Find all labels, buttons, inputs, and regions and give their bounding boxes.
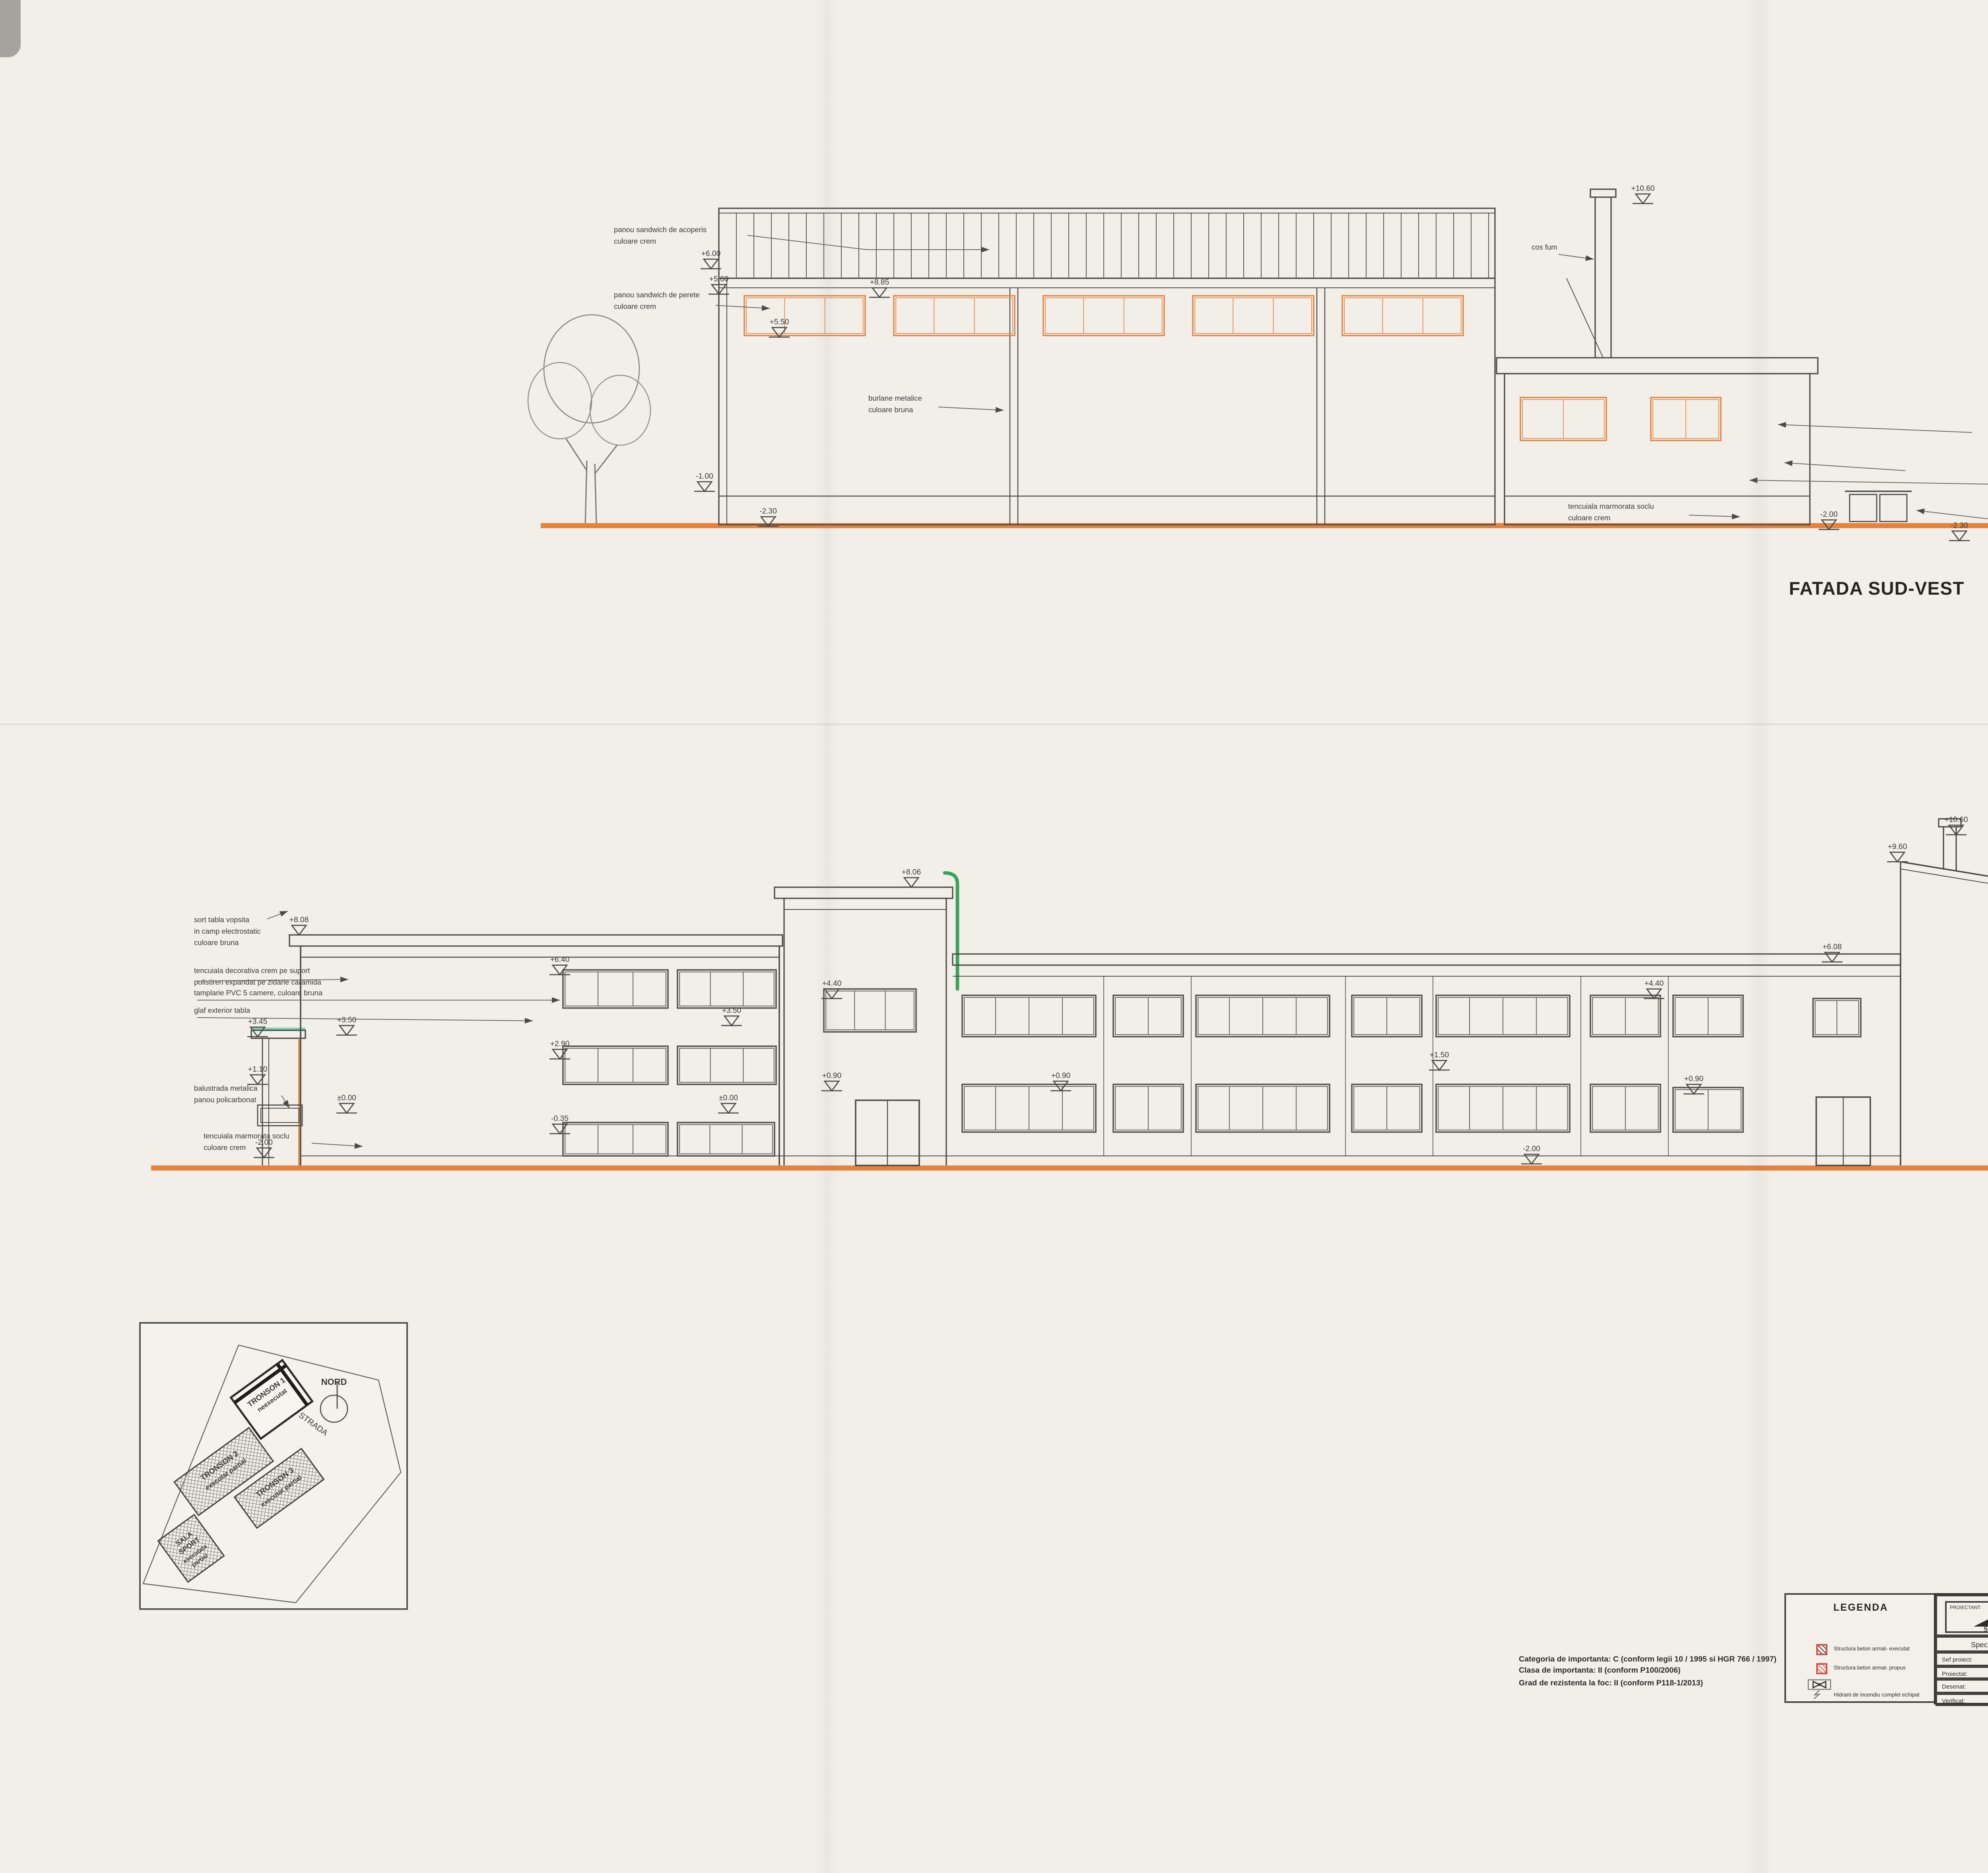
annotation-text: culoare bruna xyxy=(868,405,913,414)
window-inner-frame xyxy=(1195,298,1312,333)
spec-row: Sef proiect: xyxy=(1936,1652,1988,1666)
leader-arrow xyxy=(552,997,560,1003)
window-inner-frame xyxy=(896,298,1013,333)
level-marker-value: +6.08 xyxy=(1823,943,1842,951)
gfx-rect xyxy=(1880,494,1907,522)
gfx-line xyxy=(1567,278,1603,358)
window xyxy=(894,296,1015,335)
annotation-text: in camp electrostatic xyxy=(194,927,261,935)
level-marker-value: +3.45 xyxy=(248,1018,268,1026)
title-block: PROIECTANT: SPIRICOM S.C.SPIRICOM S.R.L.… xyxy=(1934,1593,1988,1704)
spec-label: Verificat: xyxy=(1942,1697,1965,1704)
level-marker-value: +1.10 xyxy=(248,1065,268,1074)
level-marker-value: +3.50 xyxy=(722,1006,742,1015)
level-marker-triangle xyxy=(340,1103,354,1113)
level-marker-value: +6.00 xyxy=(701,250,721,258)
window-inner-frame xyxy=(746,298,863,333)
chimney-cap xyxy=(1590,189,1616,197)
level-marker-triangle xyxy=(1952,531,1967,541)
leader-line xyxy=(716,305,770,308)
level-marker-value: +10.60 xyxy=(1944,816,1968,824)
window xyxy=(744,296,865,335)
leader-arrow xyxy=(996,407,1004,413)
leader-line xyxy=(747,235,989,250)
window-inner-frame xyxy=(1045,298,1162,333)
annotation-text: polistiren expandat pe zidarie caramida xyxy=(194,978,322,986)
gfx-rect xyxy=(1850,494,1877,522)
level-marker-triangle xyxy=(721,1103,736,1113)
annotation-text: glaf exterior tabla xyxy=(194,1006,250,1014)
scan-corner-artifact xyxy=(0,0,21,57)
window xyxy=(1342,296,1463,335)
level-marker-triangle xyxy=(904,878,918,887)
level-marker-value: -2.00 xyxy=(1820,510,1838,519)
hatch-propus-swatch xyxy=(1816,1663,1827,1674)
legend-item-label: Structura beton armat- executat xyxy=(1834,1646,1910,1652)
annotation-text: tencuiala decorativa crem pe suport xyxy=(194,966,310,975)
level-marker-triangle xyxy=(704,259,718,269)
annotation-text: tencuiala marmorata soclu xyxy=(204,1132,289,1140)
scan-fold-line xyxy=(0,723,1988,725)
legend-item-label: Structura beton armat- propus xyxy=(1834,1665,1906,1671)
leader-line xyxy=(197,1018,533,1021)
level-marker-value: +0.90 xyxy=(1684,1075,1704,1083)
annotation-text: burlane metalice xyxy=(868,394,922,402)
level-marker-value: +8.85 xyxy=(870,278,889,287)
window xyxy=(563,1046,668,1084)
annotation-text: culoare bruna xyxy=(194,938,239,947)
window-inner-frame xyxy=(679,972,774,1006)
annotation-text: culoare crem xyxy=(614,237,656,245)
level-marker-value: +2.90 xyxy=(550,1040,570,1048)
spec-header: Specificatie xyxy=(1937,1640,1988,1648)
hydrant-icon xyxy=(1807,1679,1835,1700)
leader-arrow xyxy=(1732,514,1740,519)
annotation-text: culoare crem xyxy=(204,1143,246,1152)
gfx-line xyxy=(1901,869,1988,937)
leader-line xyxy=(1778,425,1972,432)
leader-arrow xyxy=(355,1143,363,1149)
window-inner-frame xyxy=(565,972,666,1006)
level-marker-triangle xyxy=(872,288,887,297)
drawings-layer: +6.00+5.60+8.85+5.50-1.00-2.30+10.60-2.0… xyxy=(0,0,1988,1873)
spec-header-cell: Specificatie xyxy=(1936,1636,1988,1652)
level-marker-triangle xyxy=(1890,852,1905,862)
annotation-text: tamplarie PVC 5 camere, culoare bruna xyxy=(194,989,323,997)
level-marker-value: -2.30 xyxy=(759,507,777,516)
window-inner-frame xyxy=(1344,298,1461,333)
window-inner-frame xyxy=(679,1125,773,1154)
level-marker-triangle xyxy=(340,1026,354,1035)
leader-arrow xyxy=(1585,255,1594,261)
hatch-executat-swatch xyxy=(1816,1644,1827,1655)
annotation-text: tencuiala marmorata soclu xyxy=(1568,502,1654,510)
annotation-text: panou policarbonat xyxy=(194,1095,256,1104)
spec-label: Desenat: xyxy=(1942,1684,1966,1690)
tower-coping xyxy=(775,887,953,898)
window xyxy=(1043,296,1164,335)
level-marker-triangle xyxy=(1687,1084,1701,1094)
legend-title: LEGENDA xyxy=(1786,1603,1936,1614)
level-marker-value: +8.06 xyxy=(902,868,921,876)
legend-box: LEGENDA Structura beton armat- executat … xyxy=(1784,1593,1937,1703)
leader-line xyxy=(1749,480,1988,485)
level-marker-value: +3.50 xyxy=(337,1016,357,1024)
window xyxy=(563,970,668,1008)
gfx-rect xyxy=(261,1108,299,1123)
window xyxy=(678,970,776,1008)
leader-arrow xyxy=(280,911,288,917)
annotation-text: culoare crem xyxy=(614,302,656,310)
level-marker-triangle xyxy=(1432,1061,1446,1070)
leader-arrow xyxy=(525,1018,533,1024)
gfx-ellipse xyxy=(590,375,650,445)
level-marker-value: +9.60 xyxy=(1888,843,1907,851)
level-marker-value: +8.08 xyxy=(289,916,309,924)
ground-line-nv xyxy=(151,1165,1988,1171)
leader-line xyxy=(1784,463,1905,471)
gfx-ellipse xyxy=(528,363,592,439)
proiectant-cell: PROIECTANT: SPIRICOM xyxy=(1936,1595,1988,1636)
window-inner-frame xyxy=(679,1048,774,1082)
level-marker-value: +5.50 xyxy=(770,318,789,326)
window xyxy=(678,1046,776,1084)
window-inner-frame xyxy=(565,1048,666,1082)
level-marker-value: ±0.00 xyxy=(719,1094,738,1102)
level-marker-triangle xyxy=(1054,1081,1068,1091)
spec-label: Proiectat: xyxy=(1942,1670,1967,1677)
spec-row: Desenat: xyxy=(1936,1679,1988,1693)
spec-row: Proiectat: xyxy=(1936,1666,1988,1679)
level-marker-value: -2.00 xyxy=(1523,1145,1540,1153)
leader-arrow xyxy=(1778,422,1786,428)
leader-arrow xyxy=(1916,508,1925,514)
leader-arrow xyxy=(283,1100,289,1108)
annotation-text: balustrada metalica xyxy=(194,1084,258,1092)
level-marker-triangle xyxy=(1636,194,1650,204)
level-marker-value: +6.40 xyxy=(550,956,570,964)
window xyxy=(1193,296,1314,335)
leader-arrow xyxy=(762,305,770,311)
level-marker-value: +0.90 xyxy=(1051,1072,1071,1080)
spiricom-logo: SPIRICOM xyxy=(1969,1609,1988,1633)
window xyxy=(563,1123,668,1156)
level-marker-value: +10.60 xyxy=(1631,184,1654,193)
leader-arrow xyxy=(1784,460,1792,466)
level-marker-value: -1.00 xyxy=(696,472,713,481)
leader-line xyxy=(938,407,1004,410)
logo-text: SPIRICOM xyxy=(1984,1625,1988,1633)
spec-label: Sef proiect: xyxy=(1942,1657,1972,1663)
block-coping xyxy=(289,935,782,946)
north-label: NORD xyxy=(321,1377,347,1387)
facade-nord-vest-drawing: +8.08+8.06+6.40+3.45+3.50+3.50+2.90+1.10… xyxy=(151,816,1988,1171)
level-marker-value: +5.60 xyxy=(709,275,729,283)
annotation-text: cos fum xyxy=(1532,243,1557,251)
level-marker-value: ±0.00 xyxy=(337,1094,356,1102)
scan-streak xyxy=(814,0,840,1873)
window-inner-frame xyxy=(565,1125,666,1154)
annotation-text: panou sandwich de perete xyxy=(614,291,700,299)
annotation-text: culoare crem xyxy=(1568,514,1610,522)
facade1-title: FATADA SUD-VEST xyxy=(1757,580,1988,599)
level-marker-value: +1.50 xyxy=(1430,1051,1449,1059)
scanned-plan-sheet: +6.00+5.60+8.85+5.50-1.00-2.30+10.60-2.0… xyxy=(0,0,1988,1873)
level-marker-value: -2.30 xyxy=(1951,522,1968,530)
level-marker-value: -0.35 xyxy=(551,1115,569,1123)
leader-arrow xyxy=(340,977,348,982)
annotation-text: sort tabla vopsita xyxy=(194,915,250,924)
level-marker-triangle xyxy=(292,925,306,935)
level-marker-triangle xyxy=(697,482,712,491)
hall-roof-slope xyxy=(1901,862,1988,930)
window xyxy=(678,1123,775,1156)
level-marker-triangle xyxy=(724,1016,739,1026)
leader-arrow xyxy=(981,247,989,252)
annotation-text: panou sandwich de acoperis xyxy=(614,225,707,234)
scan-streak xyxy=(1746,0,1772,1873)
legend-item-label: Hidrant de incendiu complet echipat xyxy=(1834,1692,1920,1698)
spec-row: Verificat: xyxy=(1936,1693,1988,1706)
level-marker-value: +4.40 xyxy=(1644,979,1664,988)
gfx-path xyxy=(566,439,617,525)
